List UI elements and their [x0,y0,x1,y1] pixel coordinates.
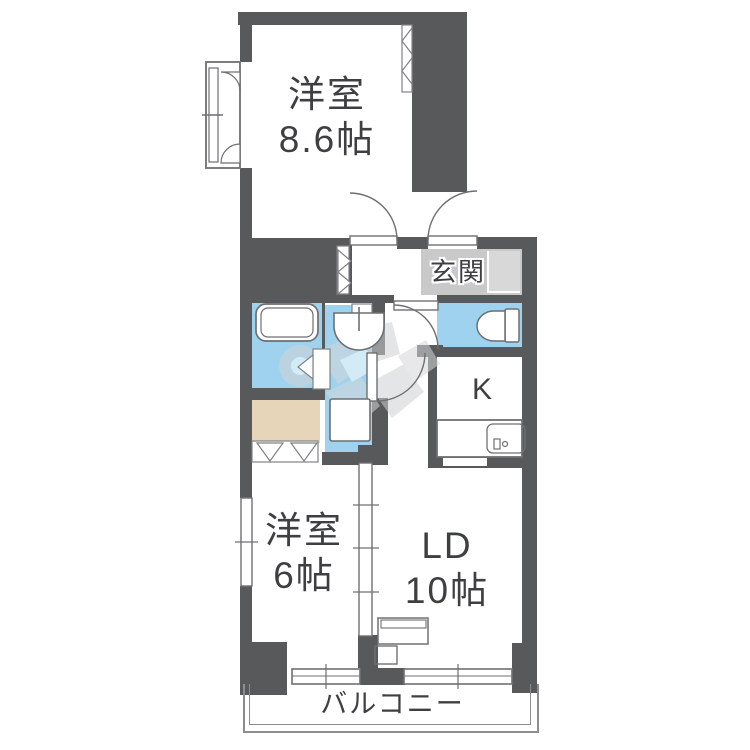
entrance-door-icon [428,191,477,245]
wall-segment [240,168,252,238]
wall-segment [358,445,378,465]
wall-segment [437,347,537,357]
hall-door-icon [367,353,425,401]
room-label-living-dining: LD 10帖 [357,523,537,613]
wall-segment [428,457,537,468]
toilet-room-floor [437,303,523,347]
room-label-western-top: 洋室 8.6帖 [232,72,422,162]
room-label-balcony: バルコニー [290,688,495,721]
wall-segment [238,12,467,25]
wall-segment [252,388,325,400]
floor-plan: 洋室 8.6帖 玄関 K 洋室 6帖 LD 10帖 バルコニー [0,0,750,750]
wall-segment [428,357,437,468]
closet-folding-door-icon [252,441,318,462]
wall-segment [437,295,522,303]
closet-bottom-room [252,400,320,443]
wall-segment [322,295,394,303]
kitchen-sink-icon [487,424,525,453]
wall-segment [372,303,385,355]
wall-segment [322,303,325,388]
washroom-floor [325,305,372,453]
wall-segment [240,303,252,498]
room-label-kitchen: K [452,372,512,409]
wall-segment [397,237,428,249]
wall-segment [360,668,405,685]
faucet-icon [494,439,500,449]
room-label-entrance: 玄関 [408,257,508,289]
swing-door-icon [350,193,397,245]
tv-board-icon [375,618,428,664]
toilet-door-icon [394,301,438,349]
wall-segment [240,25,252,62]
wall-segment [358,635,378,668]
wall-segment [240,238,352,303]
bathroom-floor [252,303,322,388]
